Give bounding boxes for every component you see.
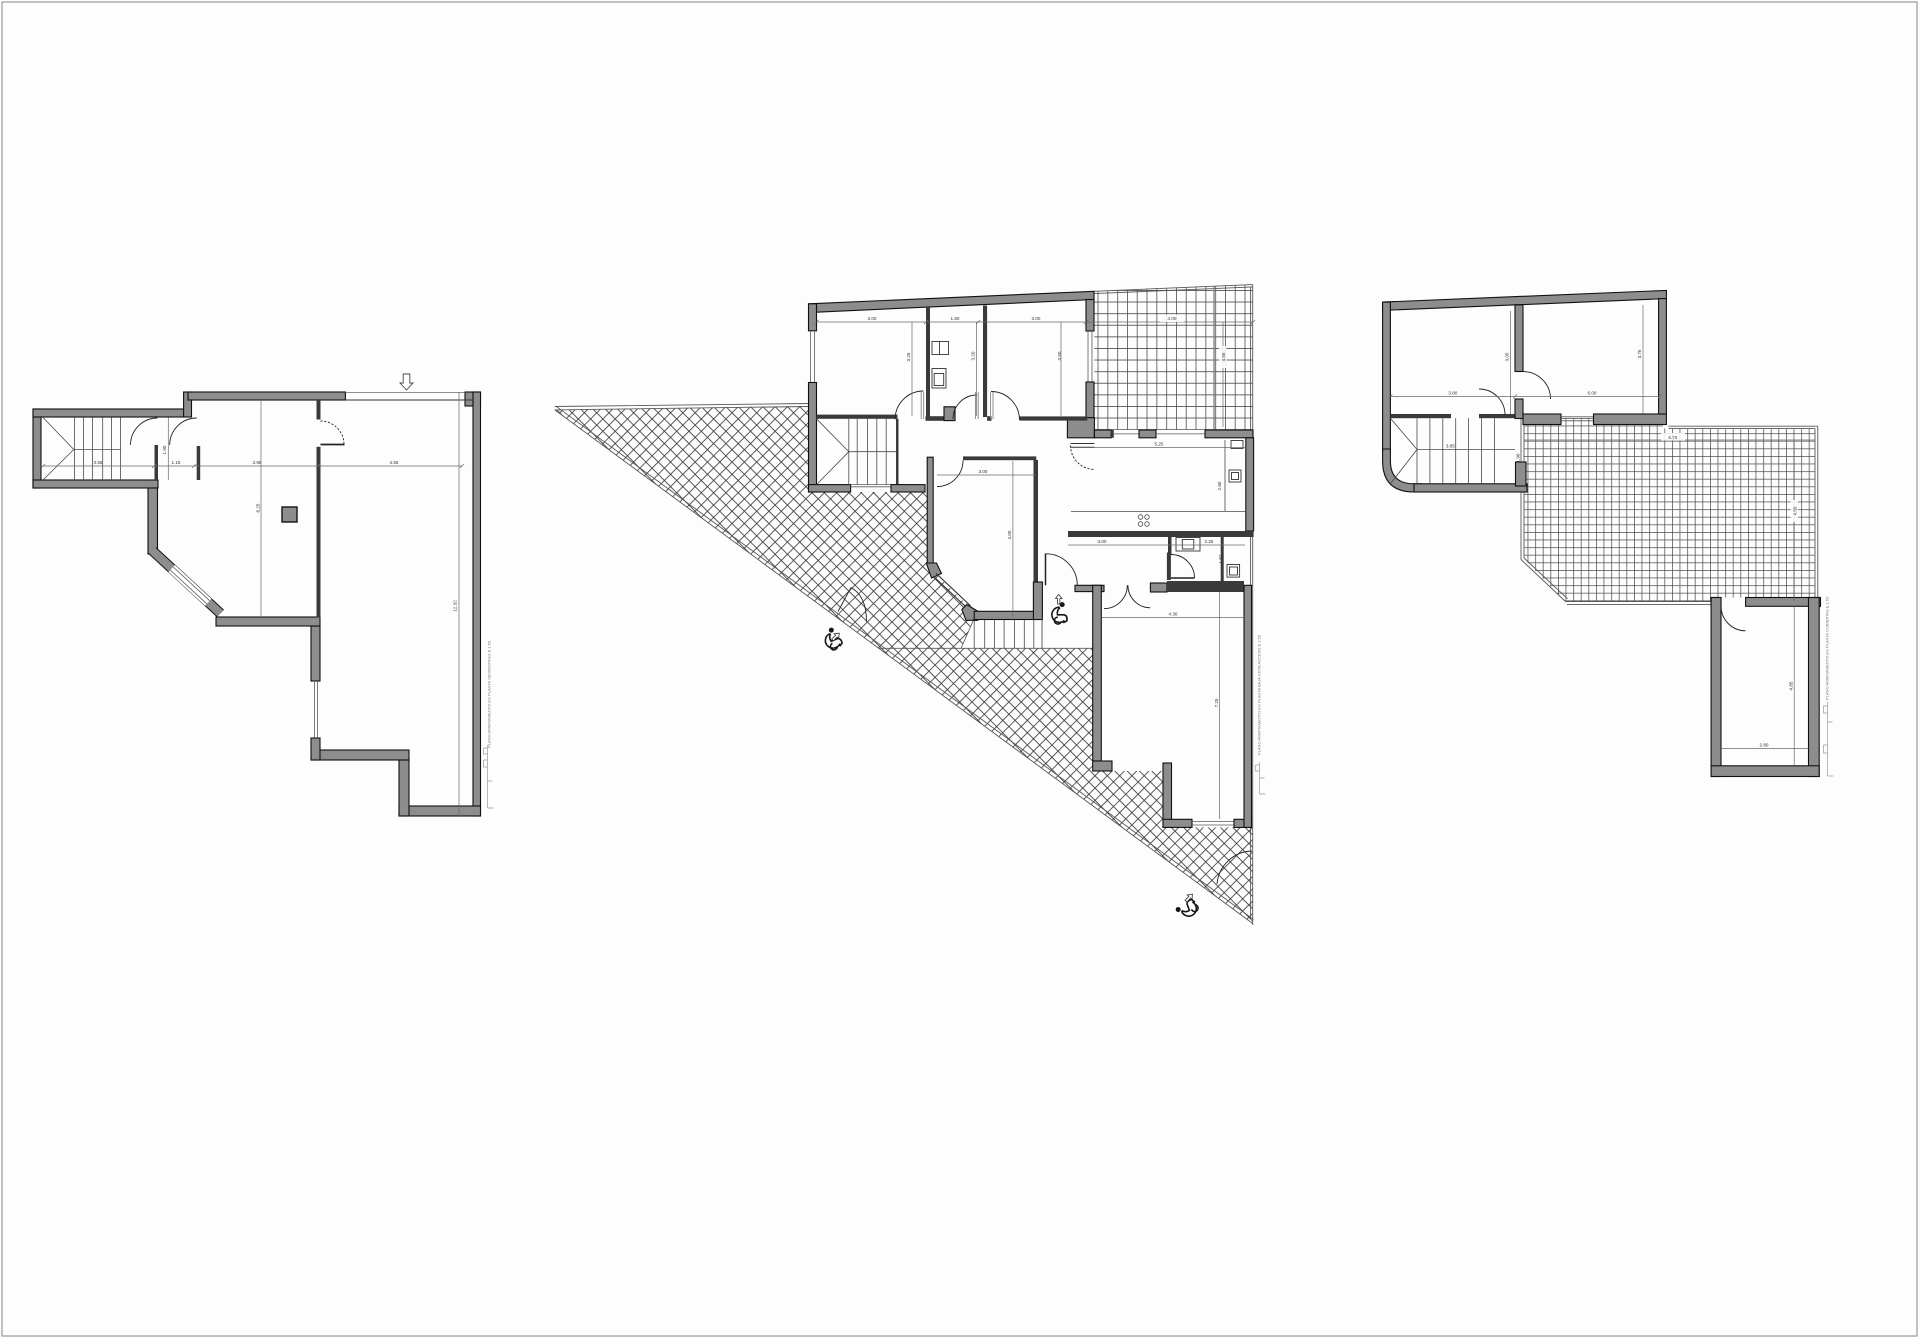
svg-text:1.90: 1.90 bbox=[1516, 453, 1521, 462]
svg-text:3.75: 3.75 bbox=[1637, 349, 1642, 358]
svg-text:2.80: 2.80 bbox=[1760, 743, 1769, 748]
svg-text:4.00: 4.00 bbox=[1168, 316, 1177, 321]
svg-text:3.05: 3.05 bbox=[1505, 352, 1510, 361]
svg-text:1.62: 1.62 bbox=[1218, 554, 1223, 563]
svg-text:2.80: 2.80 bbox=[1217, 481, 1222, 490]
svg-text:PLANO APARTAMENTO EN PLANTA CU: PLANO APARTAMENTO EN PLANTA CUBIERTAS E … bbox=[1825, 596, 1830, 700]
svg-text:7.25: 7.25 bbox=[1214, 698, 1219, 707]
svg-text:1.15: 1.15 bbox=[172, 460, 181, 465]
svg-text:PLANO APARTAMENTO EN PLANTA SE: PLANO APARTAMENTO EN PLANTA SEMISOTANO E… bbox=[487, 640, 492, 748]
svg-text:3.55: 3.55 bbox=[94, 460, 103, 465]
svg-text:3.00: 3.00 bbox=[1032, 316, 1041, 321]
svg-text:4.50: 4.50 bbox=[1793, 506, 1798, 515]
svg-text:3.95: 3.95 bbox=[253, 460, 262, 465]
svg-text:3.00: 3.00 bbox=[868, 316, 877, 321]
svg-text:4.55: 4.55 bbox=[390, 460, 399, 465]
svg-text:2.25: 2.25 bbox=[1205, 539, 1214, 544]
svg-text:4.00: 4.00 bbox=[1007, 530, 1012, 539]
svg-text:3.20: 3.20 bbox=[971, 351, 976, 360]
svg-text:3.25: 3.25 bbox=[906, 352, 911, 361]
svg-text:6.25: 6.25 bbox=[256, 503, 261, 512]
svg-text:1.60: 1.60 bbox=[951, 316, 960, 321]
svg-text:6.70: 6.70 bbox=[1668, 435, 1677, 440]
svg-text:12.32: 12.32 bbox=[453, 600, 458, 612]
svg-text:3.50: 3.50 bbox=[1057, 351, 1062, 360]
svg-text:3.00: 3.00 bbox=[1098, 539, 1107, 544]
svg-text:4.85: 4.85 bbox=[1789, 681, 1794, 690]
svg-text:5.25: 5.25 bbox=[1155, 442, 1164, 447]
svg-text:1.90: 1.90 bbox=[162, 445, 167, 454]
svg-text:PLANO APARTAMENTO EN PLANTA BA: PLANO APARTAMENTO EN PLANTA BAJA COTA AC… bbox=[1257, 634, 1262, 755]
svg-text:4.30: 4.30 bbox=[1169, 612, 1178, 617]
svg-text:6.00: 6.00 bbox=[1588, 391, 1597, 396]
svg-text:3.85: 3.85 bbox=[1446, 444, 1455, 449]
svg-text:3.00: 3.00 bbox=[979, 469, 988, 474]
svg-text:4.55: 4.55 bbox=[1221, 352, 1226, 361]
svg-text:3.80: 3.80 bbox=[1448, 391, 1457, 396]
